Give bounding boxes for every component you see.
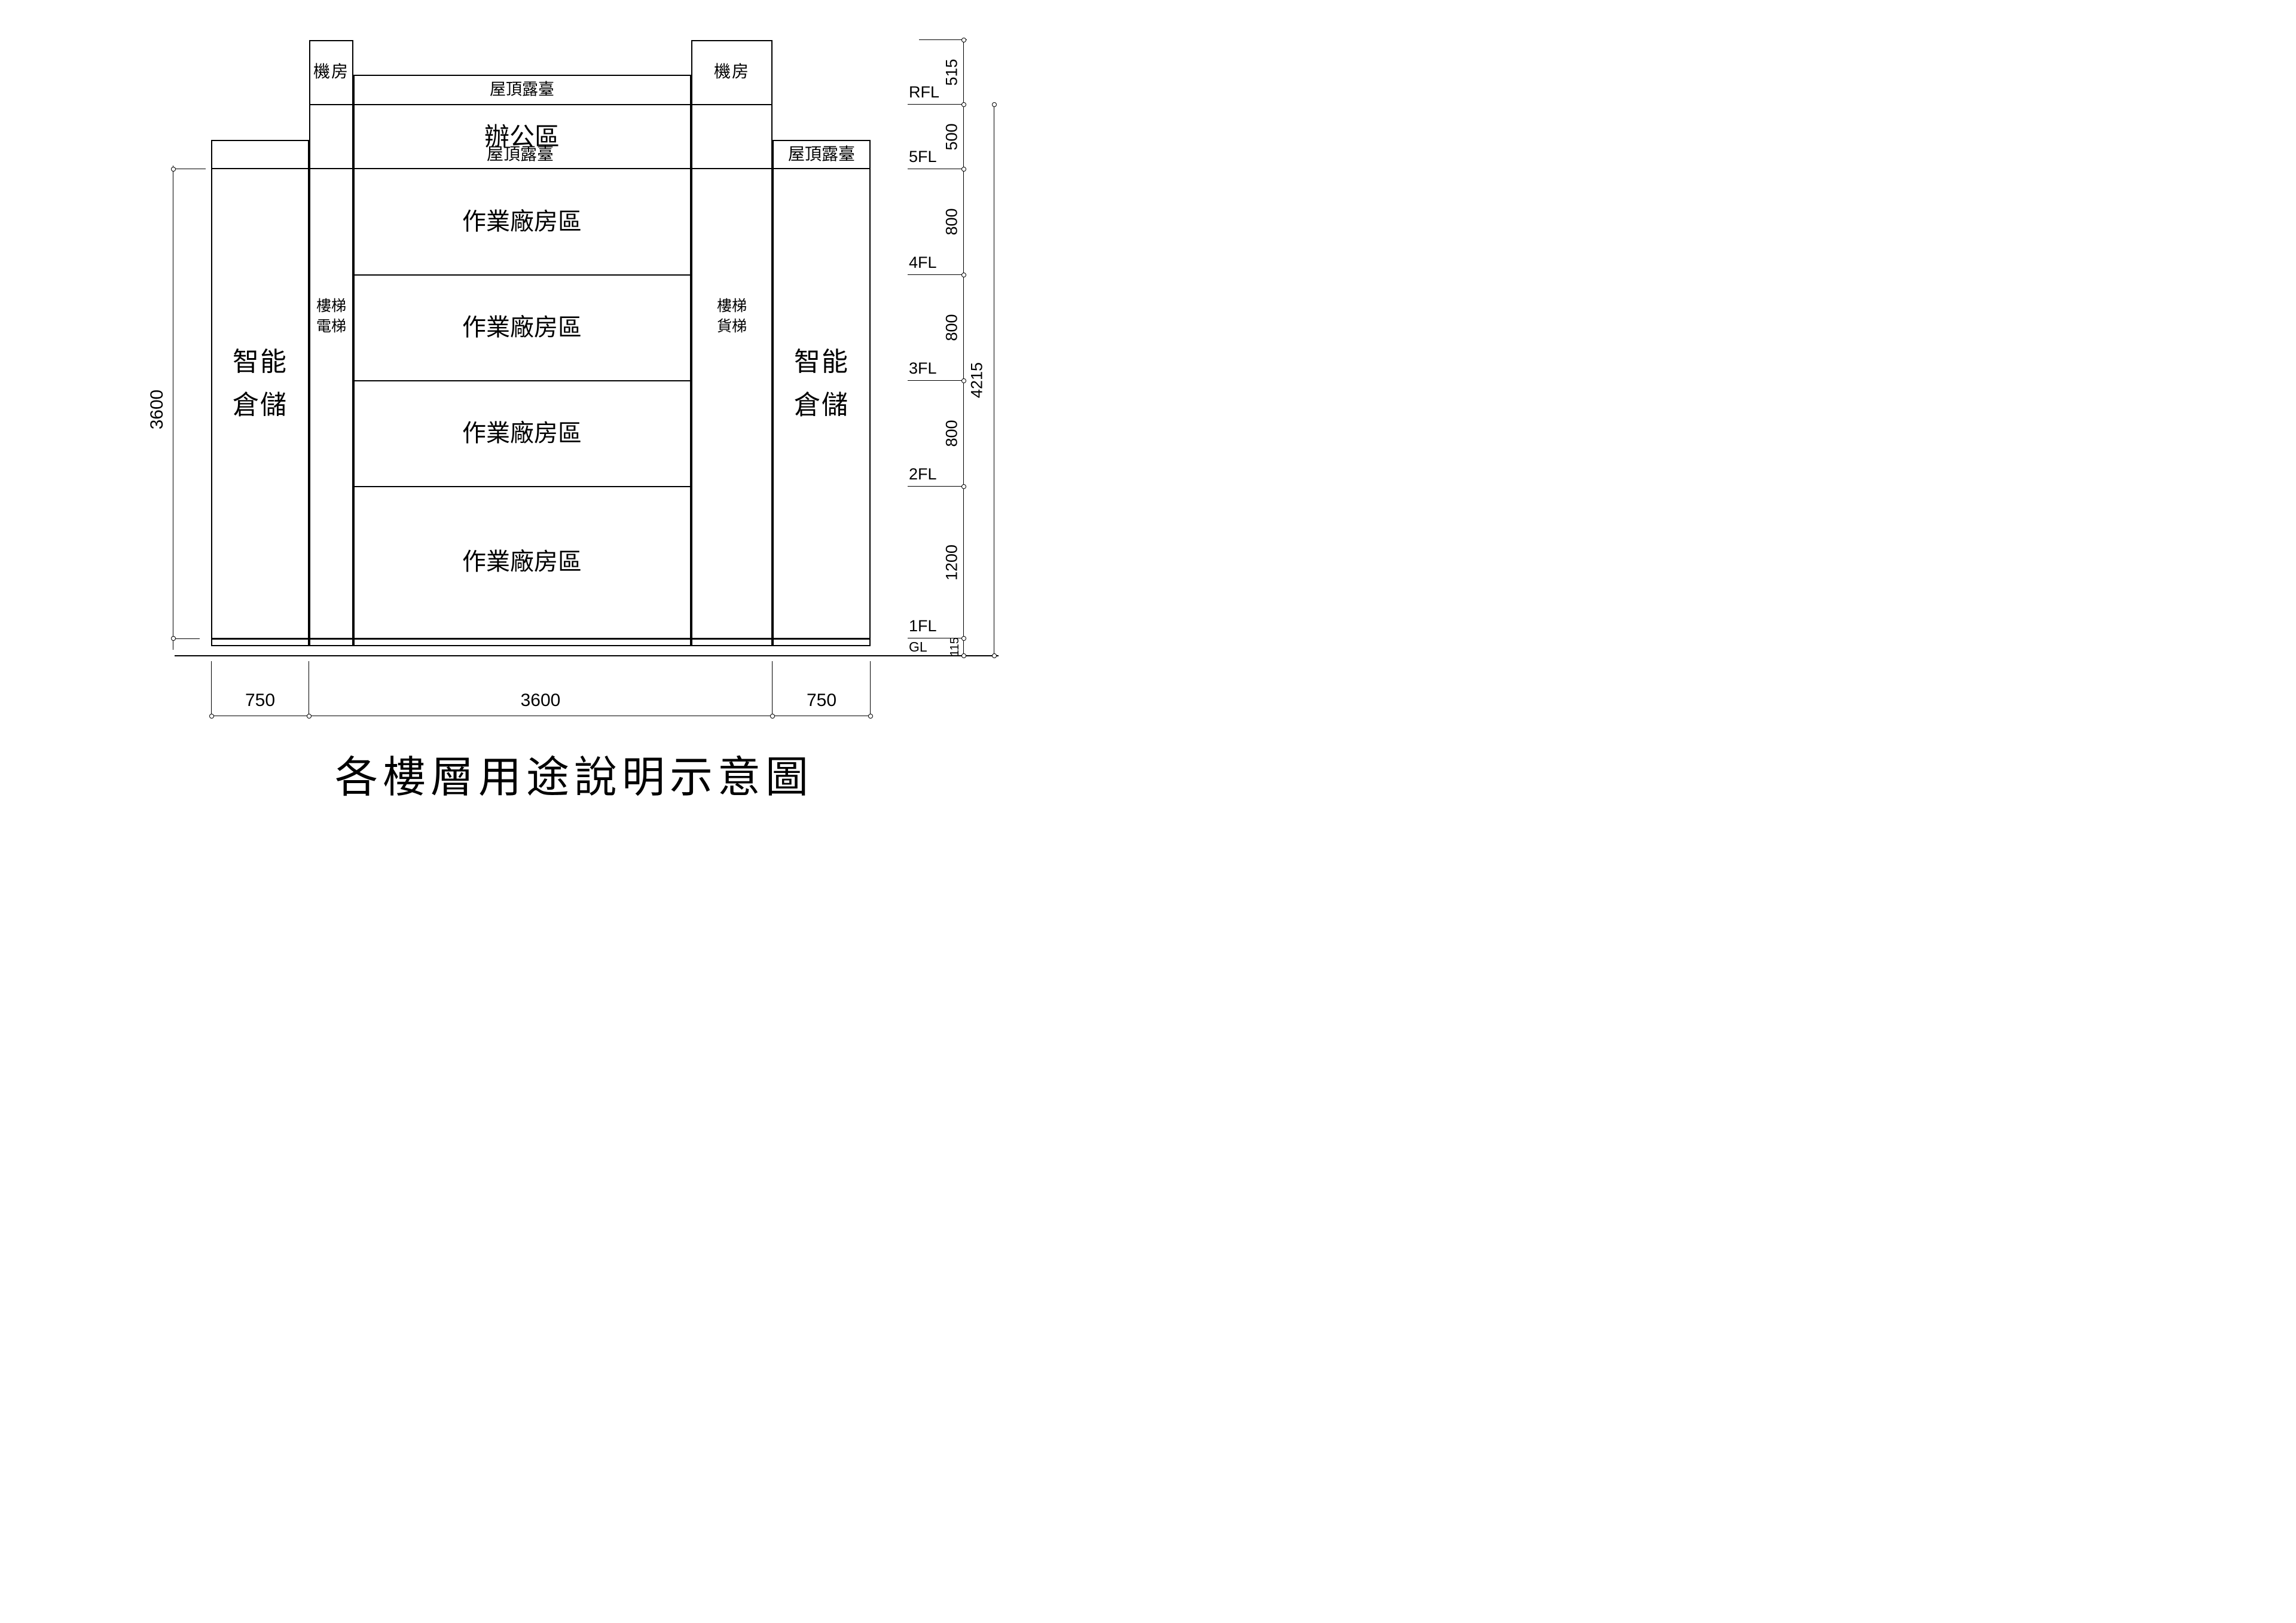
first-floor-slab-line (211, 638, 871, 640)
dim-2fl-1fl: 1200 (944, 545, 960, 580)
fifth-floor-line (211, 168, 871, 169)
rfl-floor-line (309, 104, 773, 105)
level-label-rfl: RFL (909, 84, 939, 100)
workshop-area-4f-label: 作業廠房區 (462, 210, 582, 234)
bottom-dim-tick-2 (307, 714, 312, 719)
rfl-leader-line (908, 104, 963, 105)
bottom-ext-line-2 (309, 661, 309, 716)
bottom-dim-tick-1 (209, 714, 214, 719)
right-dim-tick-rfl (961, 102, 966, 107)
level-label-4fl: 4FL (909, 255, 937, 271)
bottom-dim-tick-3 (770, 714, 775, 719)
dim-machine-room: 515 (944, 59, 960, 85)
fifth-leader-line (908, 169, 963, 169)
left-dimension-line (173, 166, 173, 650)
dim-rfl-5fl: 500 (944, 123, 960, 150)
core-left-label: 樓梯 電梯 (316, 296, 346, 337)
second-floor-line (353, 486, 691, 487)
floor-use-diagram: 機房 機房 屋頂露臺 屋頂露臺 屋頂露臺 辦公區 作業廠房區 作業廠房區 作業廠… (0, 0, 1148, 812)
tower-right-label: 智能 倉儲 (794, 341, 849, 427)
fourth-leader-line (908, 274, 963, 275)
left-tower-height-dim: 3600 (148, 390, 166, 430)
level-label-gl: GL (909, 640, 927, 654)
total-dimension-line (994, 105, 994, 656)
level-label-5fl: 5FL (909, 149, 937, 165)
right-dim-tick-top (961, 38, 966, 42)
dim-4fl-3fl: 800 (944, 314, 960, 341)
level-label-3fl: 3FL (909, 360, 937, 377)
workshop-area-3f-label: 作業廠房區 (462, 316, 582, 340)
dim-left-tower-width: 750 (245, 692, 275, 710)
dim-3fl-2fl: 800 (944, 420, 960, 447)
machine-room-left-label: 機房 (313, 63, 349, 80)
right-dimension-line (963, 39, 964, 656)
total-dim-tick-bottom (992, 653, 997, 658)
total-dim-tick-top (992, 102, 997, 107)
ground-line (175, 655, 999, 656)
core-right-label-line1: 樓梯 (717, 296, 747, 316)
core-right-label-line2: 貨梯 (717, 316, 747, 337)
tower-right-label-line1: 智能 (794, 341, 849, 384)
left-dim-tick-top (171, 167, 176, 172)
top-leader-line (919, 39, 967, 40)
core-left-label-line1: 樓梯 (316, 296, 346, 316)
workshop-area-1f-label: 作業廠房區 (462, 550, 582, 574)
workshop-area-2f-label: 作業廠房區 (462, 421, 582, 445)
right-dim-tick-gl (961, 653, 966, 658)
core-left-wall (309, 40, 353, 646)
tower-left-label-line1: 智能 (233, 341, 288, 384)
bottom-ext-line-3 (772, 661, 773, 716)
roof-terrace-right-label: 屋頂露臺 (788, 146, 855, 163)
tower-left-label-line2: 倉儲 (233, 384, 288, 427)
core-left-label-line2: 電梯 (316, 316, 346, 337)
bottom-ext-line-1 (211, 661, 212, 716)
level-label-1fl: 1FL (909, 618, 937, 634)
bottom-dim-tick-4 (868, 714, 873, 719)
right-dim-tick-3fl (961, 378, 966, 383)
dim-total-height: 4215 (969, 362, 985, 398)
core-right-label: 樓梯 貨梯 (717, 296, 747, 337)
right-dim-tick-1fl (961, 636, 966, 641)
third-floor-line (353, 380, 691, 381)
dim-right-tower-width: 750 (807, 692, 836, 710)
tower-left-label: 智能 倉儲 (233, 341, 288, 427)
left-dim-extension-top (173, 169, 206, 169)
diagram-title: 各樓層用途說明示意圖 (335, 756, 813, 799)
roof-terrace-center-label: 屋頂露臺 (490, 82, 554, 98)
tower-right-label-line2: 倉儲 (794, 384, 849, 427)
level-label-2fl: 2FL (909, 466, 937, 482)
second-leader-line (908, 486, 963, 487)
right-dim-tick-4fl (961, 273, 966, 277)
right-dim-tick-5fl (961, 167, 966, 172)
fourth-floor-line (353, 274, 691, 276)
third-leader-line (908, 380, 963, 381)
bottom-ext-line-4 (870, 661, 871, 716)
office-area-label: 辦公區 (484, 124, 560, 149)
dim-1fl-gl: 115 (949, 637, 961, 656)
machine-room-right-label: 機房 (714, 63, 750, 80)
right-dim-tick-2fl (961, 484, 966, 489)
left-dim-extension-bottom (173, 638, 200, 639)
dim-center-width: 3600 (521, 692, 561, 710)
left-dim-tick-bottom (171, 636, 176, 641)
core-right-wall (691, 40, 773, 646)
dim-5fl-4fl: 800 (944, 208, 960, 235)
